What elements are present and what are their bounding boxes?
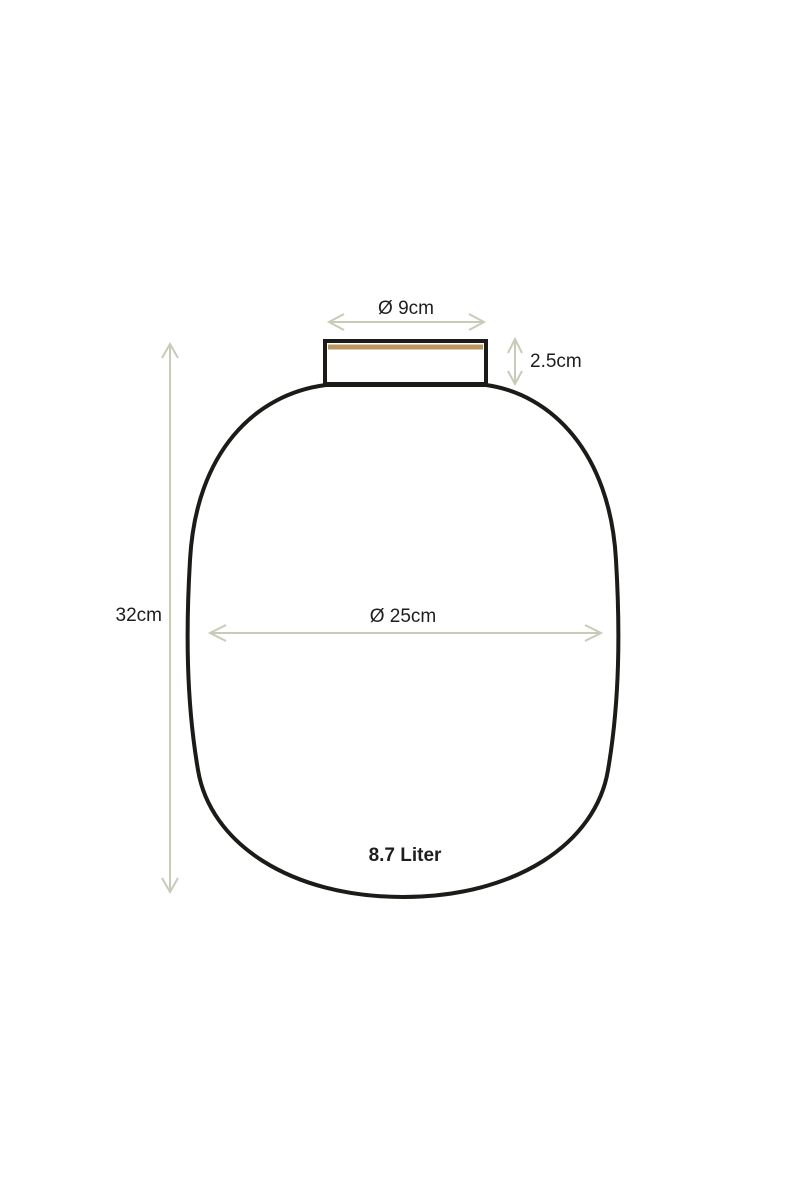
volume-label: 8.7 Liter [325, 845, 485, 867]
total-height-label: 32cm [98, 605, 162, 627]
dimension-neck-height-arrow [508, 339, 522, 384]
body-diameter-label: Ø 25cm [323, 606, 483, 628]
neck-rim-accent-line [328, 345, 483, 350]
top-diameter-label: Ø 9cm [326, 298, 486, 320]
vase-dimension-drawing [0, 0, 800, 1200]
neck-height-label: 2.5cm [530, 351, 582, 373]
vase-body-outline [188, 385, 619, 897]
dimension-total-height-arrow [162, 344, 178, 892]
diagram-canvas: Ø 9cm 2.5cm 32cm Ø 25cm 8.7 Liter [0, 0, 800, 1200]
